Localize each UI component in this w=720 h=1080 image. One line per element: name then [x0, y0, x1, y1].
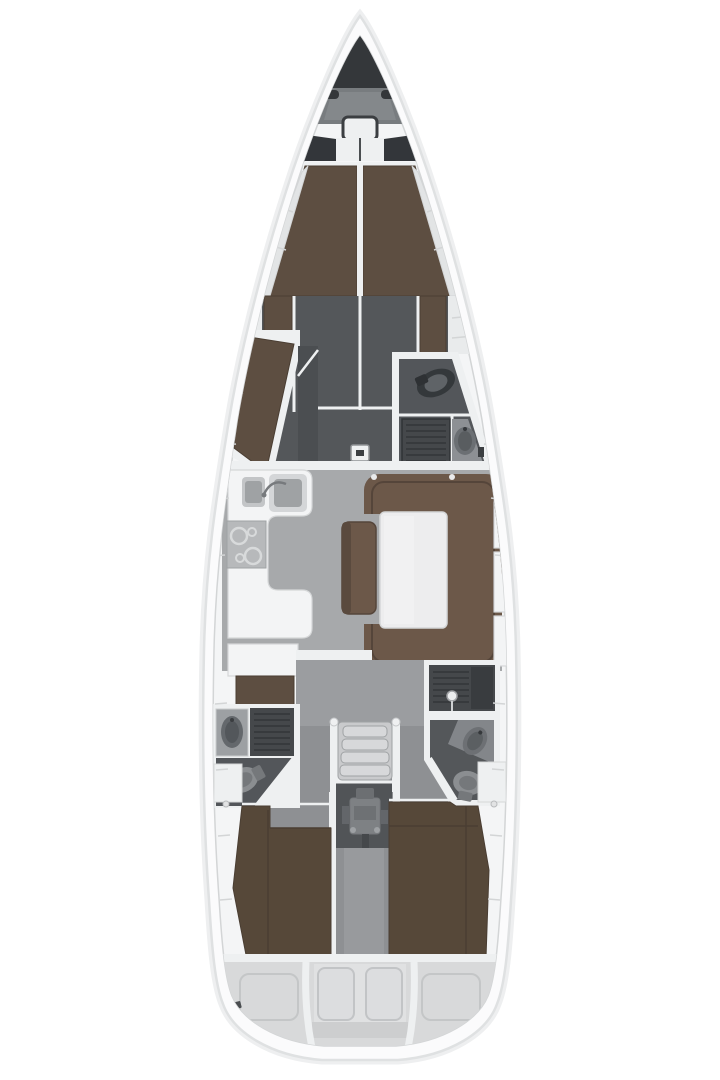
companionway-rail-starboard — [392, 720, 400, 792]
engine-top-mount — [356, 788, 374, 799]
mast-step-fitting — [356, 450, 364, 456]
yacht-layout-figure — [0, 0, 720, 1080]
step-2 — [342, 739, 388, 750]
forward-head-door-handle — [478, 447, 484, 457]
lazarette-hatch-left — [318, 968, 354, 1020]
engine-bolt-left — [350, 827, 356, 833]
dinette-bench-backrest — [342, 522, 351, 614]
foredeck — [292, 34, 428, 161]
foredeck-hatch — [343, 117, 377, 140]
aft-berth-port — [233, 806, 331, 960]
step-4 — [340, 765, 390, 776]
sofa-fitting-left — [371, 474, 377, 480]
engine-shaft — [362, 834, 369, 848]
step-1 — [343, 726, 387, 737]
aft-starboard-locker-knob — [491, 801, 497, 807]
salon-table-highlight — [384, 516, 414, 624]
lazarette-hatch-right — [366, 968, 402, 1020]
aft-head-port-sink-basin — [225, 721, 239, 743]
wardrobe-starboard — [420, 296, 446, 356]
main-bulkhead — [222, 461, 502, 470]
engine-detail — [354, 806, 376, 820]
galley-sink-small-basin — [245, 481, 262, 503]
sofa-fitting-right — [449, 474, 455, 480]
aft-port-locker-knob — [223, 801, 229, 807]
mid-floor — [296, 660, 430, 730]
aft-starboard-locker — [478, 762, 506, 802]
yacht-floorplan-svg — [0, 0, 720, 1080]
rail-cap-starboard — [392, 718, 400, 726]
galley-cabinet — [228, 644, 298, 676]
shower-head — [447, 691, 457, 701]
engine-pipe-right — [381, 810, 388, 824]
engine-bolt-right — [374, 827, 380, 833]
v-berth-center-seam — [357, 164, 363, 296]
forward-sink-faucet — [463, 427, 467, 431]
aft-head-starboard-shower-bench — [471, 667, 493, 709]
transom-shadow-band — [312, 1022, 408, 1038]
center-corridor-light — [344, 848, 384, 954]
interior — [212, 34, 510, 1048]
galley-faucet-base — [262, 493, 267, 498]
rail-cap-port — [330, 718, 338, 726]
forward-shower-grate — [406, 425, 446, 461]
step-3 — [341, 752, 389, 763]
engine-pipe-left — [342, 806, 349, 824]
aft-head-port-faucet — [230, 718, 234, 722]
salon-dinette — [342, 474, 510, 670]
aft-head-port-grate — [254, 714, 290, 750]
forward-sink-basin — [458, 431, 472, 451]
wardrobe-port — [264, 296, 292, 332]
